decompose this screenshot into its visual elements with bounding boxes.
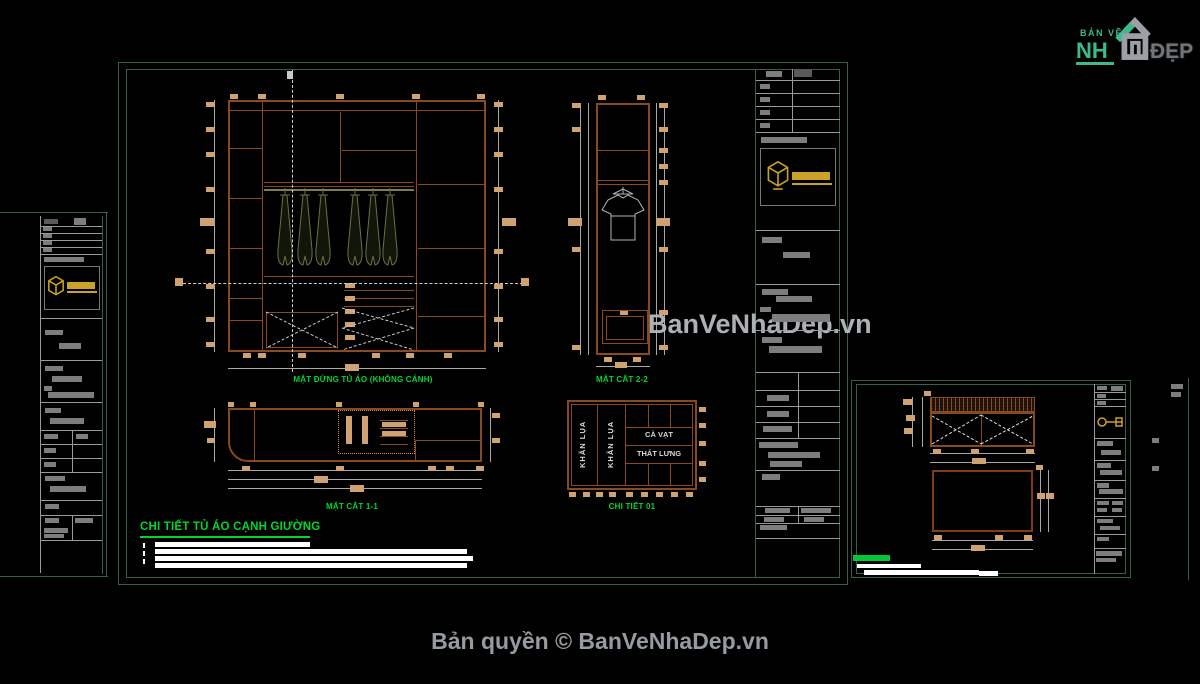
cube-logo-icon [47, 272, 65, 304]
note-line [857, 564, 921, 568]
footer-copyright: Bản quyền © BanVeNhaDep.vn [0, 628, 1200, 655]
logo-name-right: ĐẸP [1150, 40, 1193, 64]
logo-name-left: NH [1076, 38, 1108, 64]
watermark: BanVeNhaDep.vn [648, 309, 872, 340]
tshirt-icon [599, 186, 647, 248]
section-cut-line-1 [178, 283, 528, 284]
elevation-label: MẶT ĐỨNG TỦ ÁO (KHÔNG CÁNH) [293, 375, 432, 384]
detail-cell-label: KHĂN LỤA [606, 412, 615, 476]
logo-text-bar [67, 282, 95, 289]
note-line [155, 563, 467, 568]
note-line [155, 542, 310, 547]
note-line [979, 571, 998, 576]
section-1-1-label: MẶT CẮT 1-1 [326, 502, 378, 511]
note-line [864, 570, 979, 575]
hanging-clothes-icon [262, 186, 416, 278]
diagonal-brace-lines [930, 412, 1035, 447]
hatch-strip [930, 397, 1035, 412]
logo-underline [1076, 62, 1114, 65]
note-line [155, 556, 473, 561]
cross-brace-lines [262, 304, 418, 354]
gold-ornament-icon [1097, 410, 1125, 434]
title-underline [140, 536, 310, 538]
cube-logo-icon [766, 156, 790, 198]
detail-01-label: CHI TIẾT 01 [609, 502, 656, 511]
section-cut-line-2 [292, 70, 293, 372]
cad-screenshot: BẢN VẼ NH ĐẸP [0, 0, 1200, 684]
logo-text-bar [792, 172, 830, 180]
section-2-2-label: MẶT CẮT 2-2 [596, 375, 648, 384]
detail-cell-label: CÀ VẠT [627, 430, 691, 439]
highlighted-note [853, 555, 890, 561]
sheet-title: CHI TIẾT TỦ ÁO CẠNH GIƯỜNG [140, 521, 320, 533]
detail-cell-label: THẮT LƯNG [627, 449, 691, 458]
note-line [155, 549, 467, 554]
detail-cell-label: KHĂN LỤA [578, 412, 587, 476]
house-icon [1112, 12, 1154, 64]
